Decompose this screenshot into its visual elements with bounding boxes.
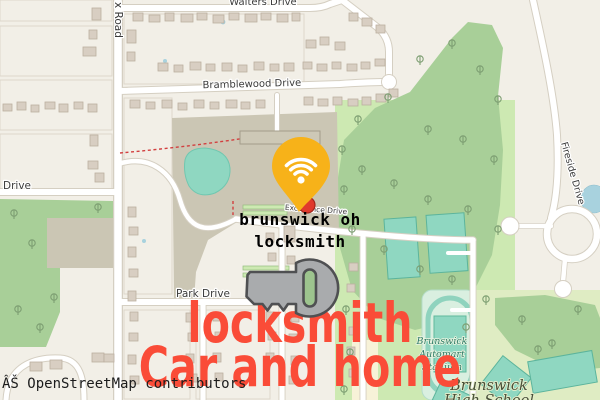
search-query-line1: brunswick oh <box>0 210 600 229</box>
attribution[interactable]: ÂŠ OpenStreetMap contributors <box>2 376 246 392</box>
search-query-line2: locksmith <box>0 232 600 251</box>
map-screenshot: Walters Drive x Road Bramblewood Drive D… <box>0 0 600 400</box>
street-label-west-drive: Drive <box>3 180 31 192</box>
street-label-x-road: x Road <box>112 2 124 38</box>
street-label-walters-drive: Walters Drive <box>229 0 296 8</box>
